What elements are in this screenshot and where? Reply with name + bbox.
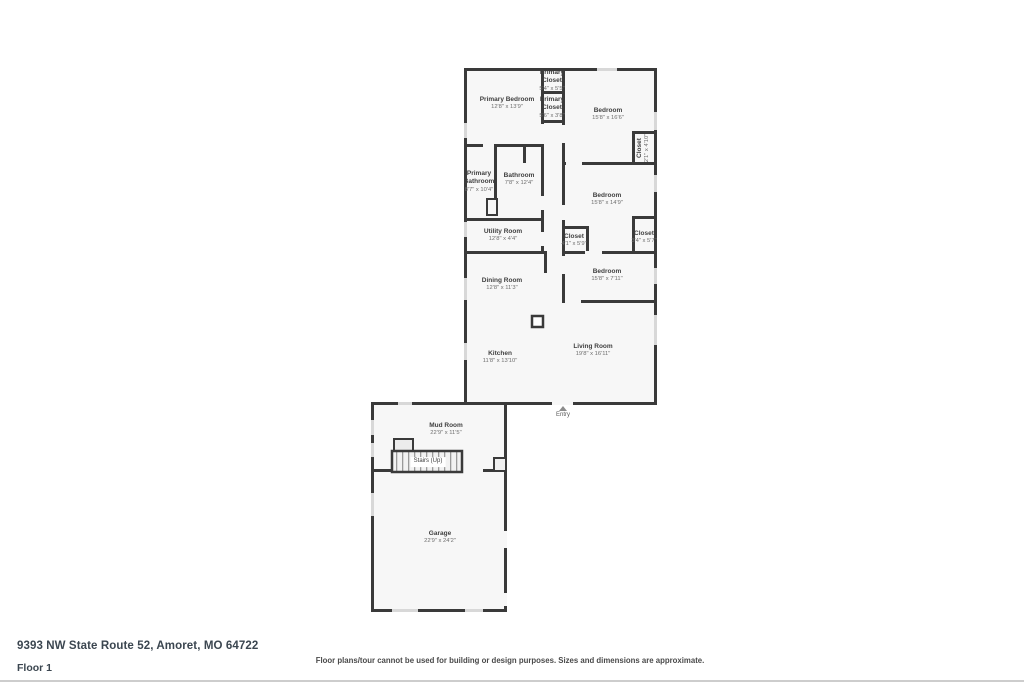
utility-box: [494, 458, 506, 471]
floor-plan-drawing: [0, 0, 1024, 682]
bathroom-nook: [487, 199, 497, 215]
entry-arrow-icon: [559, 406, 567, 411]
property-address: 9393 NW State Route 52, Amoret, MO 64722: [17, 640, 258, 652]
stairs-run: [392, 451, 462, 472]
entry-marker: Entry: [556, 406, 570, 420]
entry-label: Entry: [556, 412, 570, 418]
kitchen-column: [532, 316, 543, 327]
room-floors: [372, 69, 656, 610]
floor-label: Floor 1: [17, 662, 52, 674]
disclaimer-text: Floor plans/tour cannot be used for buil…: [316, 656, 705, 665]
floor-plan-page: Primary Bedroom 12'8" x 13'9" Primary Cl…: [0, 0, 1024, 682]
